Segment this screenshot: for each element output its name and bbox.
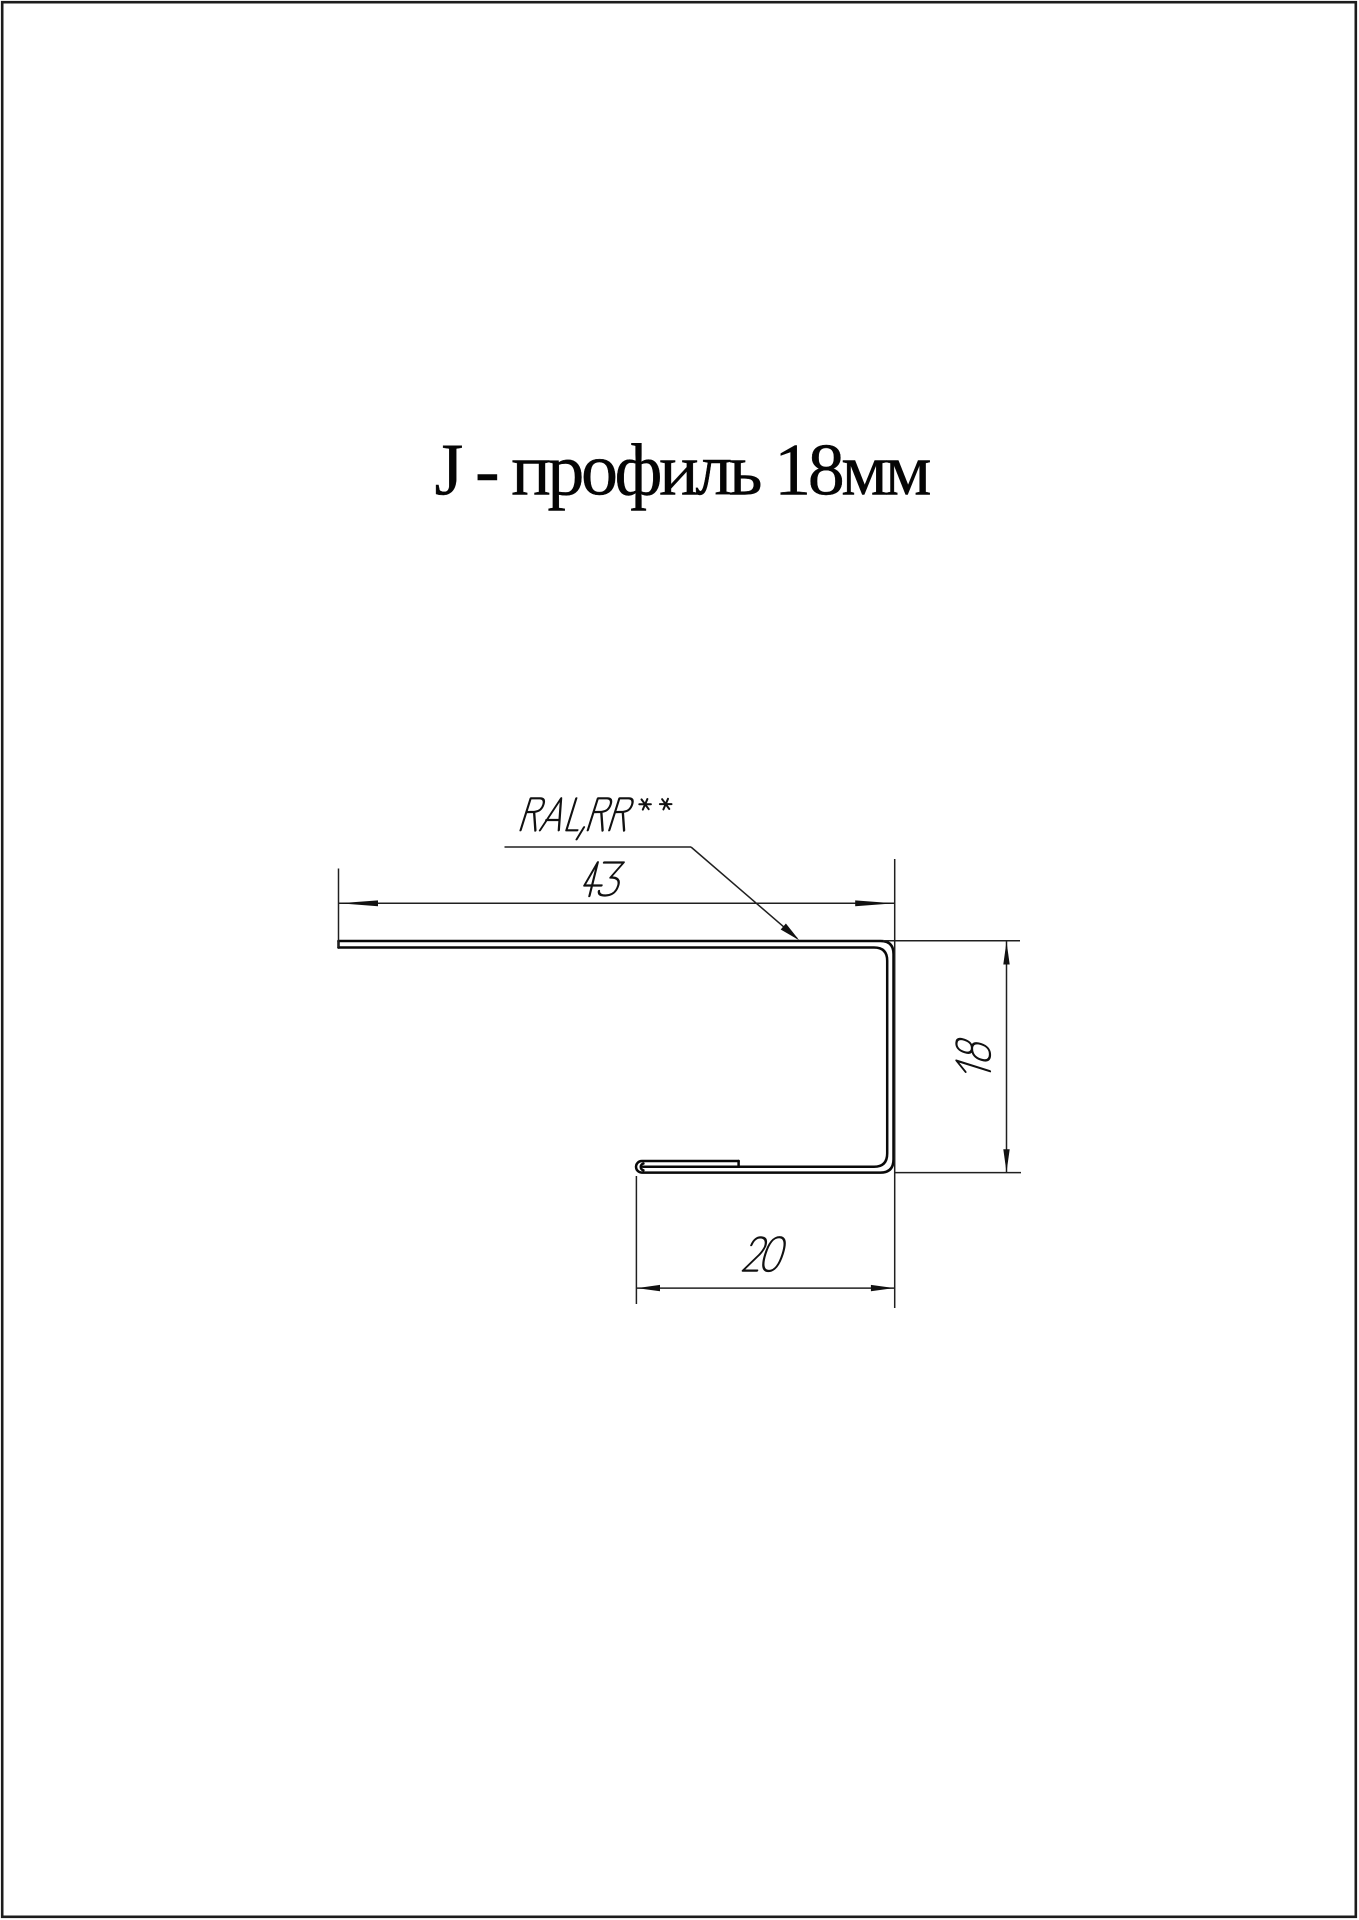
svg-text:J - профиль 18мм: J - профиль 18мм [435,429,932,511]
